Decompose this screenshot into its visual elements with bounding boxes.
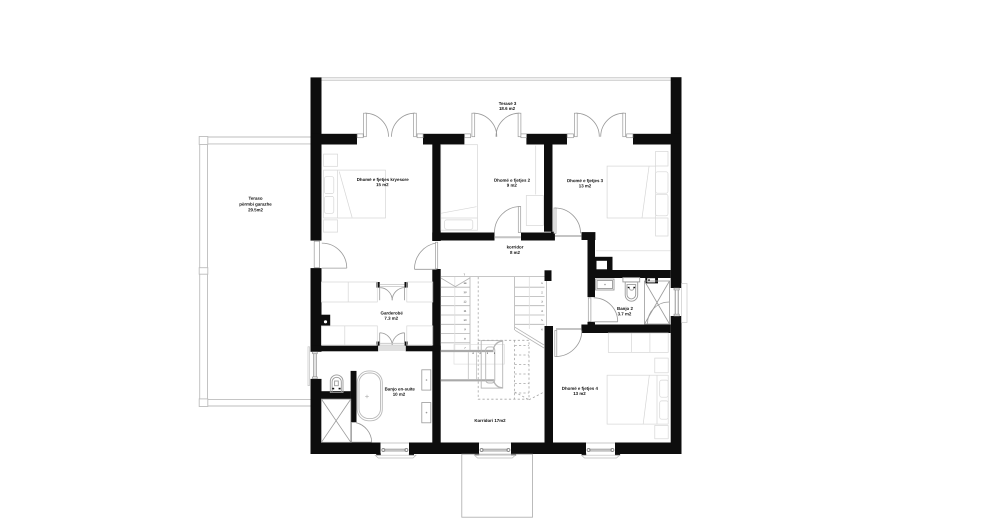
svg-text:Teraso: Teraso (248, 196, 262, 201)
svg-text:15 m2: 15 m2 (376, 182, 389, 187)
svg-text:Garderobë: Garderobë (381, 310, 404, 315)
svg-text:Korridori 17m2: Korridori 17m2 (474, 418, 506, 423)
svg-text:përmbi garazhe: përmbi garazhe (239, 202, 272, 207)
svg-text:8 m2: 8 m2 (510, 250, 521, 255)
svg-text:18.6 m2: 18.6 m2 (499, 106, 516, 111)
svg-text:29.5m2: 29.5m2 (248, 207, 263, 212)
svg-text:13 m2: 13 m2 (579, 183, 592, 188)
svg-text:Banjo 2: Banjo 2 (617, 306, 633, 311)
svg-text:9 m2: 9 m2 (507, 183, 518, 188)
svg-text:3.7 m2: 3.7 m2 (618, 311, 632, 316)
svg-text:Banjo en-suite: Banjo en-suite (385, 386, 416, 391)
svg-text:korridor: korridor (507, 245, 524, 250)
svg-text:7.3 m2: 7.3 m2 (384, 316, 398, 321)
svg-text:10 m2: 10 m2 (393, 392, 406, 397)
svg-text:13 m2: 13 m2 (573, 391, 586, 396)
